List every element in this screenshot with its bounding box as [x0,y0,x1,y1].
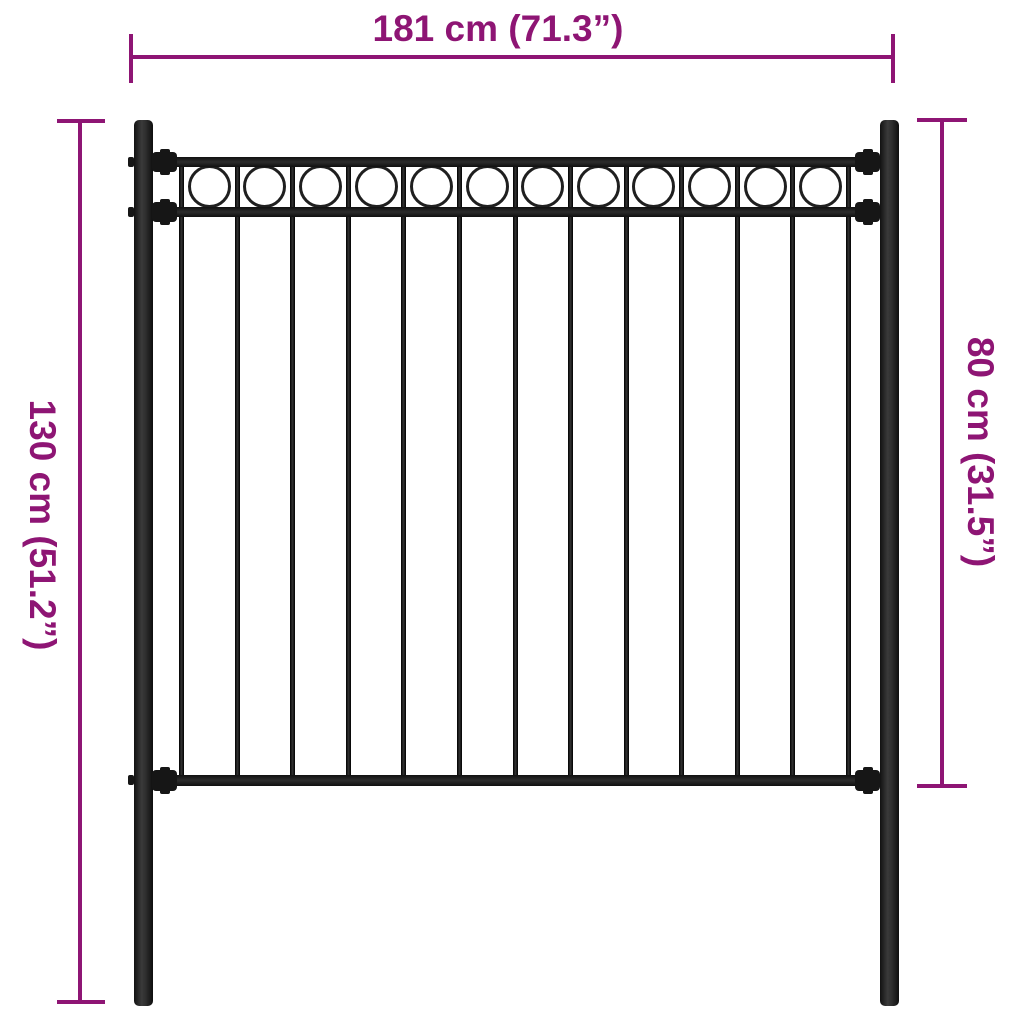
fence-ring-ornament [243,165,286,208]
fence-top-rail [153,157,880,167]
fence-vertical-bar [401,158,406,786]
fence-ring-ornament [299,165,342,208]
fence-ring-ornament [466,165,509,208]
fence-bottom-rail [153,775,880,786]
fence-vertical-bar [290,158,295,786]
fence-ring-ornament [410,165,453,208]
fence-vertical-bar [790,158,795,786]
fence-ring-ornament [632,165,675,208]
fence-vertical-bar [735,158,740,786]
total-height-dimension-line [78,121,82,1002]
bracket-bolt-nub [128,775,134,785]
rail-post-bracket [152,770,177,791]
rail-post-bracket [152,202,177,222]
bracket-bolt-nub [128,157,134,167]
total-height-dimension-tick-top [57,119,105,123]
fence-vertical-bar [179,158,184,786]
rail-post-bracket [152,152,177,172]
fence-ring-ornament [577,165,620,208]
fence-vertical-bar [513,158,518,786]
fence-ring-ornament [744,165,787,208]
fence-vertical-bar [235,158,240,786]
rail-post-bracket [855,202,880,222]
fence-middle-rail [153,207,880,217]
width-dimension-label: 181 cm (71.3”) [373,8,624,50]
fence-vertical-bar [846,158,851,786]
panel-height-dimension-tick-top [917,118,967,122]
total-height-dimension-label: 130 cm (51.2”) [21,400,63,651]
panel-height-dimension-tick-bottom [917,784,967,788]
rail-post-bracket [855,152,880,172]
fence-vertical-bar [457,158,462,786]
fence-ring-ornament [799,165,842,208]
fence-post-left [134,120,153,1006]
fence-vertical-bar [346,158,351,786]
fence-post-right [880,120,899,1006]
fence-ring-ornament [188,165,231,208]
fence-dimension-diagram: 181 cm (71.3”) 130 cm (51.2”) 80 cm (31.… [0,0,1024,1024]
width-dimension-line [131,55,893,59]
fence-ring-ornament [688,165,731,208]
width-dimension-tick-right [891,34,895,83]
total-height-dimension-tick-bottom [57,1000,105,1004]
fence-ring-ornament [355,165,398,208]
fence-vertical-bar [679,158,684,786]
fence-vertical-bar [624,158,629,786]
width-dimension-tick-left [129,34,133,83]
rail-post-bracket [855,770,880,791]
panel-height-dimension-label: 80 cm (31.5”) [959,337,1001,567]
bracket-bolt-nub [128,207,134,217]
panel-height-dimension-line [940,120,944,786]
fence-ring-ornament [521,165,564,208]
fence-vertical-bar [568,158,573,786]
